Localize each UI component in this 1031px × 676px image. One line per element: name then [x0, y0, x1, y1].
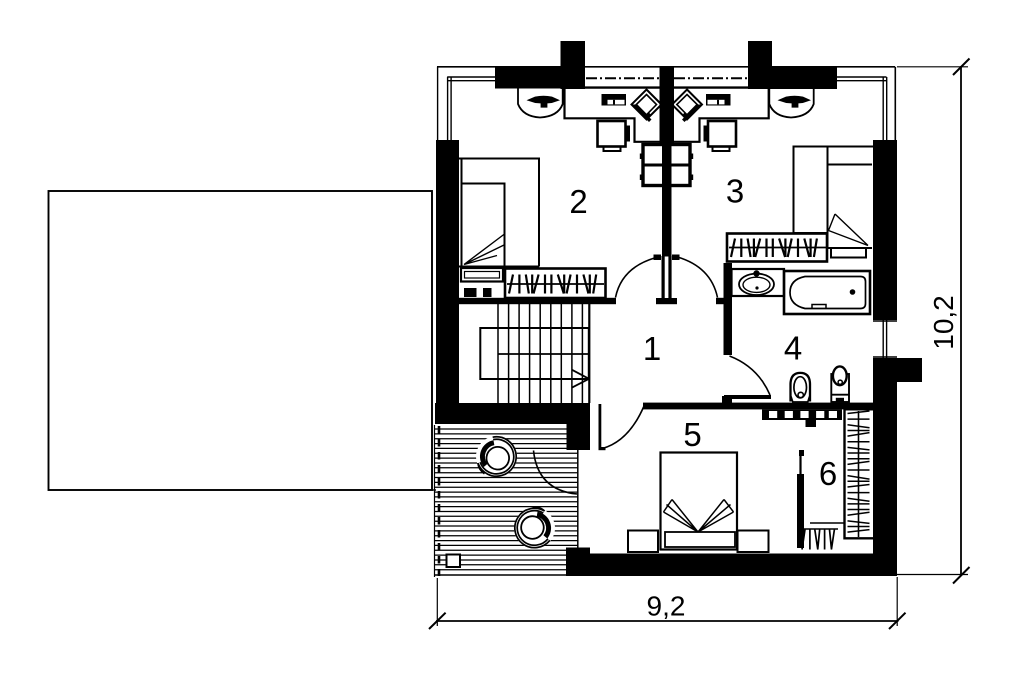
- svg-text:4: 4: [784, 330, 802, 367]
- svg-text:6: 6: [819, 455, 837, 492]
- svg-text:2: 2: [569, 183, 587, 220]
- svg-text:9,2: 9,2: [647, 591, 686, 622]
- svg-text:3: 3: [726, 173, 744, 210]
- svg-text:10,2: 10,2: [928, 295, 959, 350]
- svg-text:1: 1: [643, 330, 661, 367]
- svg-text:5: 5: [683, 416, 701, 453]
